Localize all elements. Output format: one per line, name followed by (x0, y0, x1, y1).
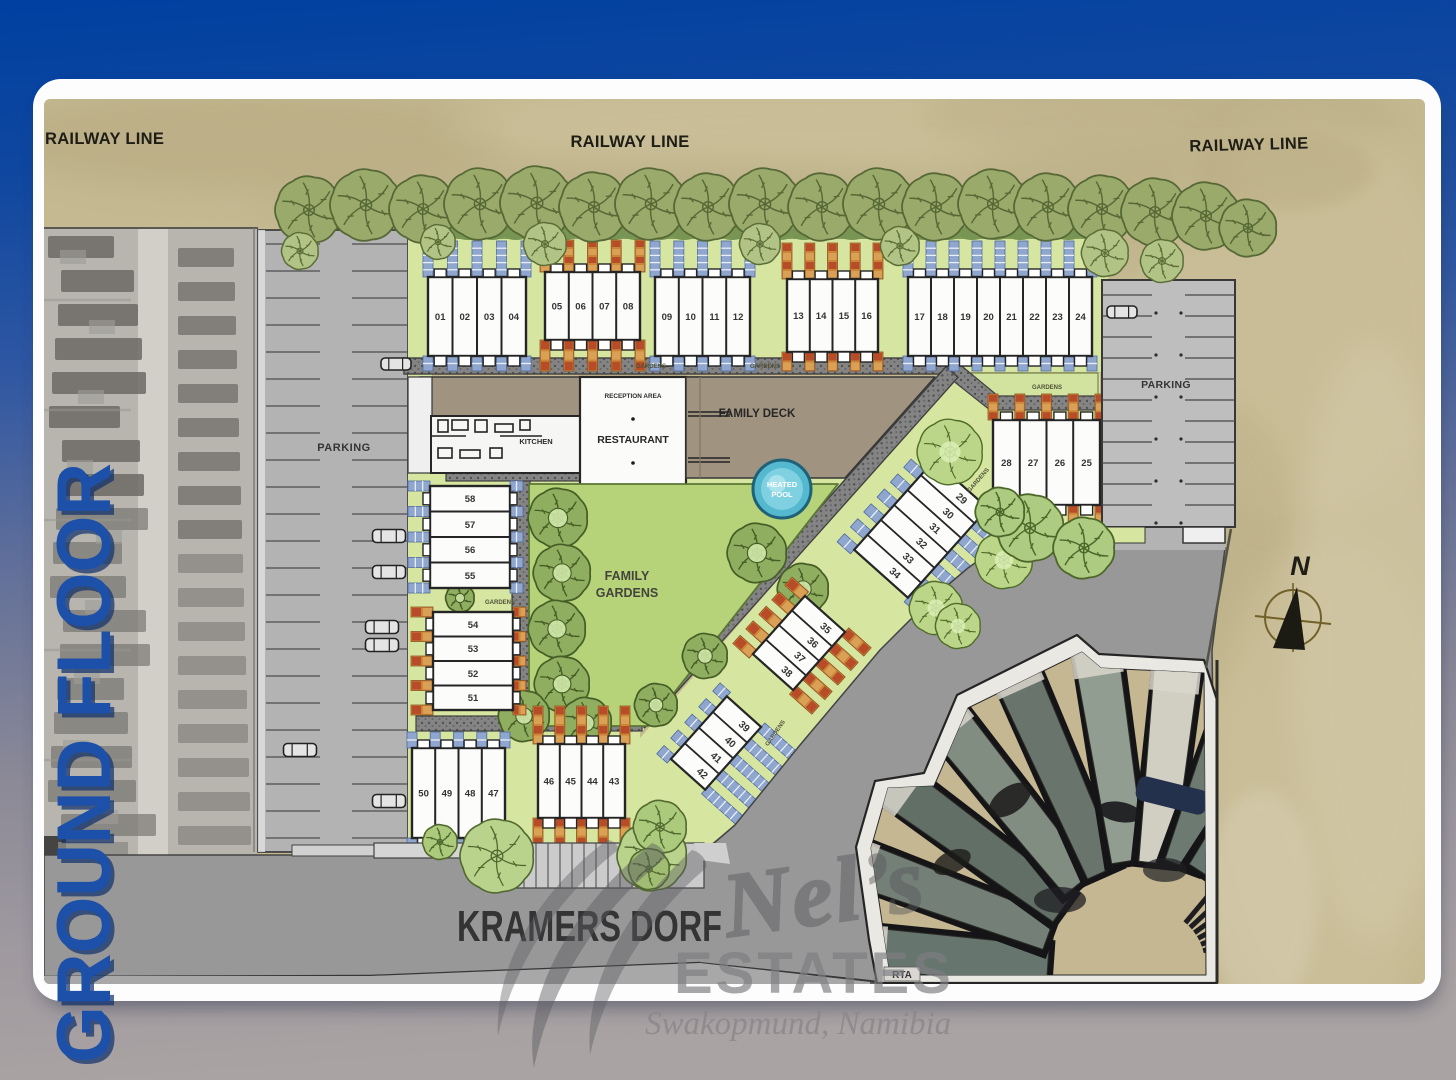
svg-text:Swakopmund, Namibia: Swakopmund, Namibia (645, 1006, 951, 1042)
svg-text:GROUND FLOOR: GROUND FLOOR (42, 463, 127, 1063)
svg-text:ESTATES: ESTATES (674, 941, 954, 1006)
